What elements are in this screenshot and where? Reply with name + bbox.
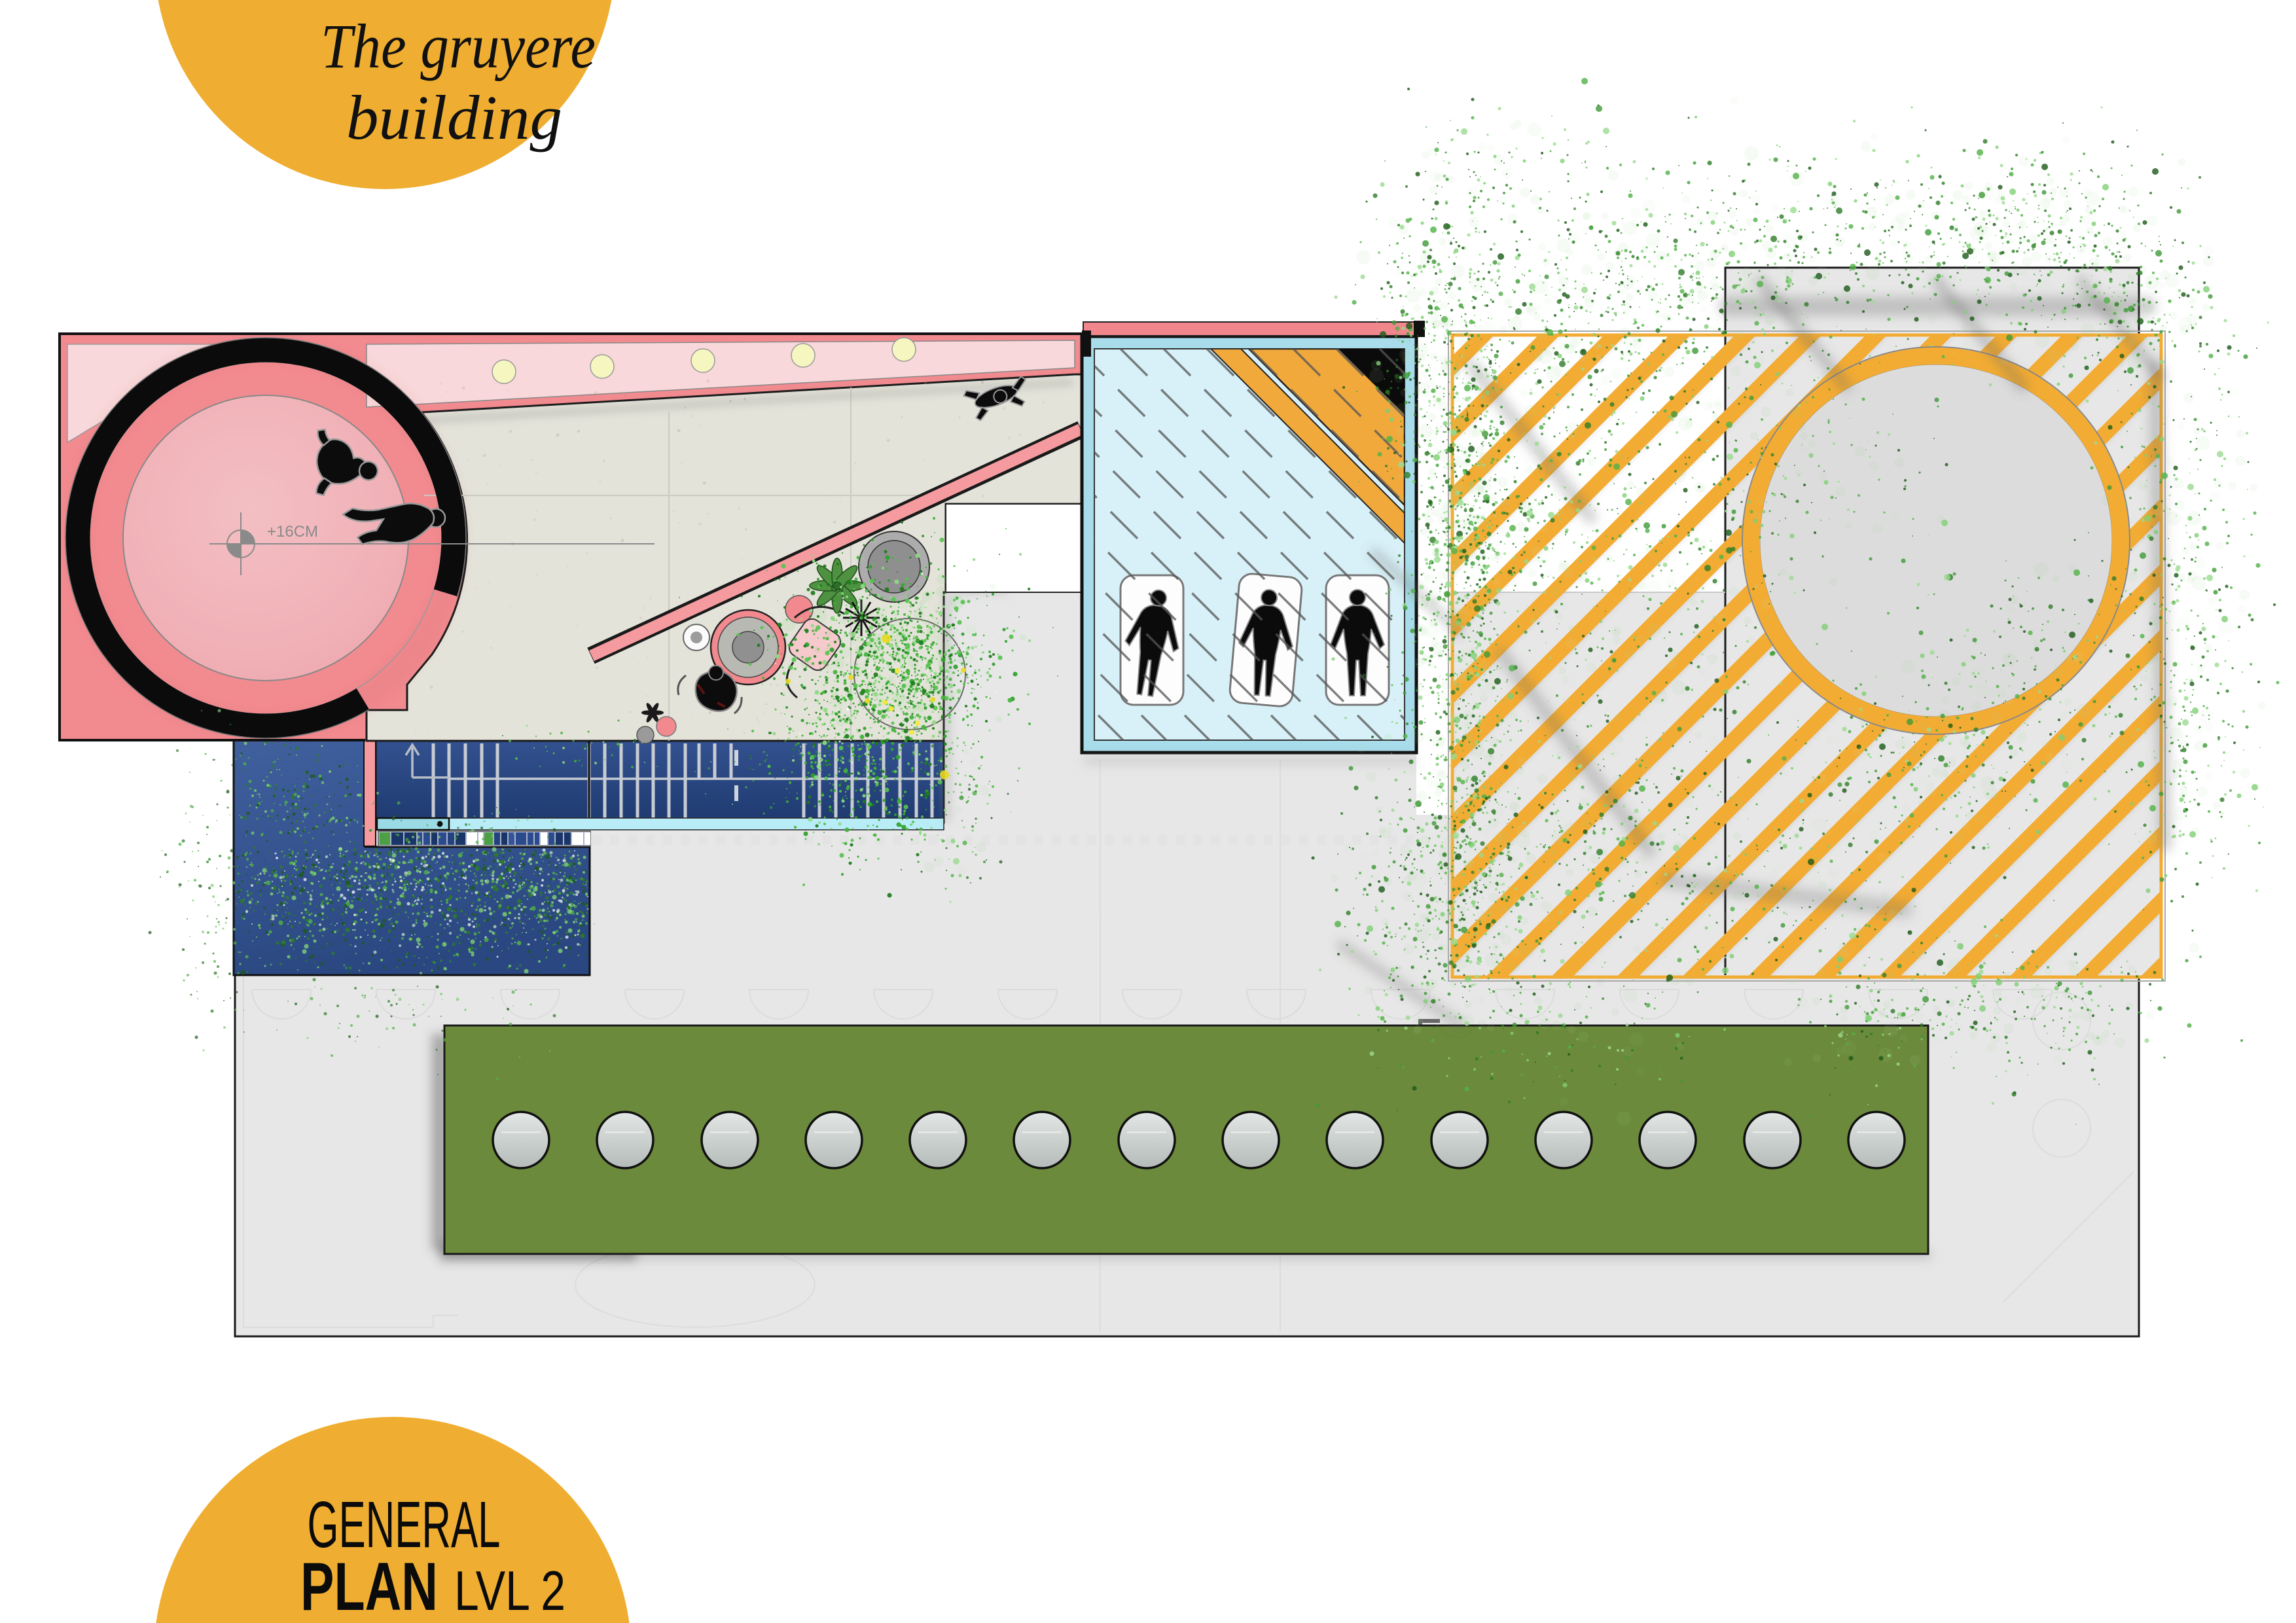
svg-text:+16CM: +16CM	[267, 523, 318, 541]
svg-text:The gruyere: The gruyere	[321, 11, 596, 81]
svg-text:PLANLVL 2: PLANLVL 2	[300, 1549, 565, 1623]
svg-text:building: building	[346, 82, 562, 152]
